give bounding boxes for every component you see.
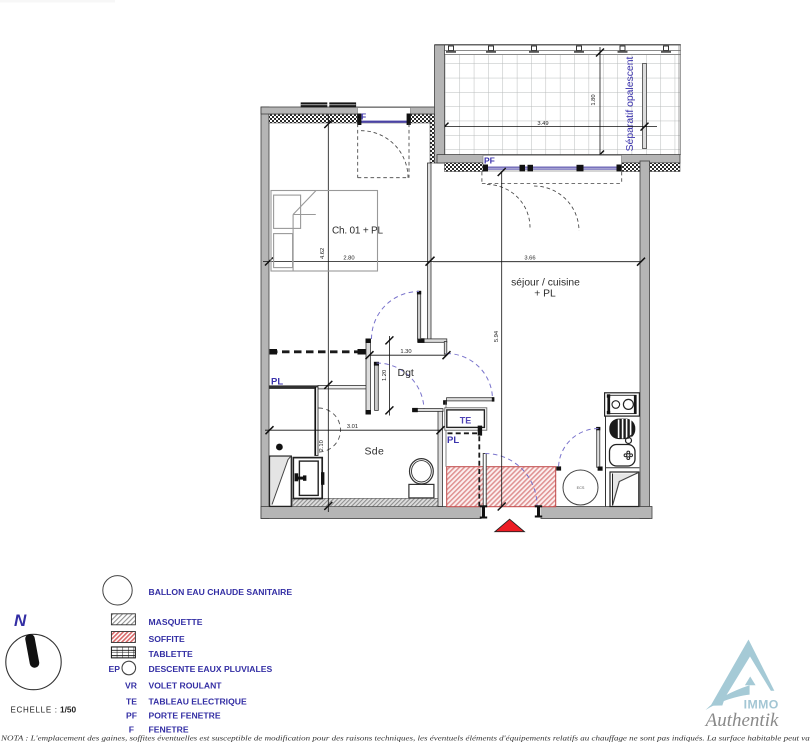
svg-text:1.80: 1.80 — [591, 94, 597, 105]
svg-text:N: N — [14, 611, 27, 630]
svg-text:2.10: 2.10 — [319, 440, 325, 451]
svg-text:FENETRE: FENETRE — [149, 725, 189, 735]
svg-text:1.30: 1.30 — [400, 349, 411, 355]
svg-text:Dgt: Dgt — [398, 367, 414, 379]
svg-text:NOTA : L'emplacement des gaine: NOTA : L'emplacement des gaines, soffite… — [0, 735, 810, 742]
svg-text:TABLETTE: TABLETTE — [149, 649, 194, 659]
svg-text:SOFFITE: SOFFITE — [149, 634, 186, 644]
svg-text:PF: PF — [484, 156, 495, 166]
svg-text:ECHELLE :: ECHELLE : — [11, 706, 58, 715]
svg-text:1.20: 1.20 — [382, 370, 388, 381]
svg-text:Séparatif opalescent: Séparatif opalescent — [625, 57, 636, 152]
svg-text:1/50: 1/50 — [60, 705, 77, 715]
svg-text:+ PL: + PL — [534, 289, 556, 300]
svg-text:VOLET ROULANT: VOLET ROULANT — [149, 681, 223, 691]
svg-text:3.01: 3.01 — [347, 424, 358, 430]
svg-text:F: F — [361, 112, 366, 122]
svg-text:ECS: ECS — [577, 486, 585, 490]
svg-text:F: F — [129, 725, 134, 735]
svg-text:EP: EP — [109, 664, 121, 674]
svg-text:TE: TE — [460, 416, 472, 426]
svg-text:3.66: 3.66 — [524, 255, 535, 261]
svg-text:PF: PF — [126, 710, 137, 720]
svg-text:VR: VR — [125, 681, 138, 691]
svg-text:Ch. 01 + PL: Ch. 01 + PL — [332, 226, 384, 237]
svg-text:MASQUETTE: MASQUETTE — [149, 617, 203, 627]
svg-text:Authentik: Authentik — [704, 710, 779, 731]
svg-text:DESCENTE EAUX PLUVIALES: DESCENTE EAUX PLUVIALES — [149, 664, 273, 674]
svg-text:PL: PL — [447, 435, 459, 446]
svg-text:4.62: 4.62 — [320, 248, 326, 259]
svg-text:5.94: 5.94 — [494, 330, 500, 342]
svg-text:Sde: Sde — [365, 446, 385, 458]
svg-text:TABLEAU ELECTRIQUE: TABLEAU ELECTRIQUE — [149, 696, 247, 706]
svg-text:BALLON EAU CHAUDE SANITAIRE: BALLON EAU CHAUDE SANITAIRE — [149, 587, 293, 597]
svg-text:TE: TE — [126, 696, 137, 706]
svg-text:PORTE FENETRE: PORTE FENETRE — [149, 710, 221, 720]
svg-text:séjour / cuisine: séjour / cuisine — [511, 278, 580, 289]
svg-text:3.49: 3.49 — [537, 121, 548, 127]
svg-text:2.80: 2.80 — [343, 255, 354, 261]
